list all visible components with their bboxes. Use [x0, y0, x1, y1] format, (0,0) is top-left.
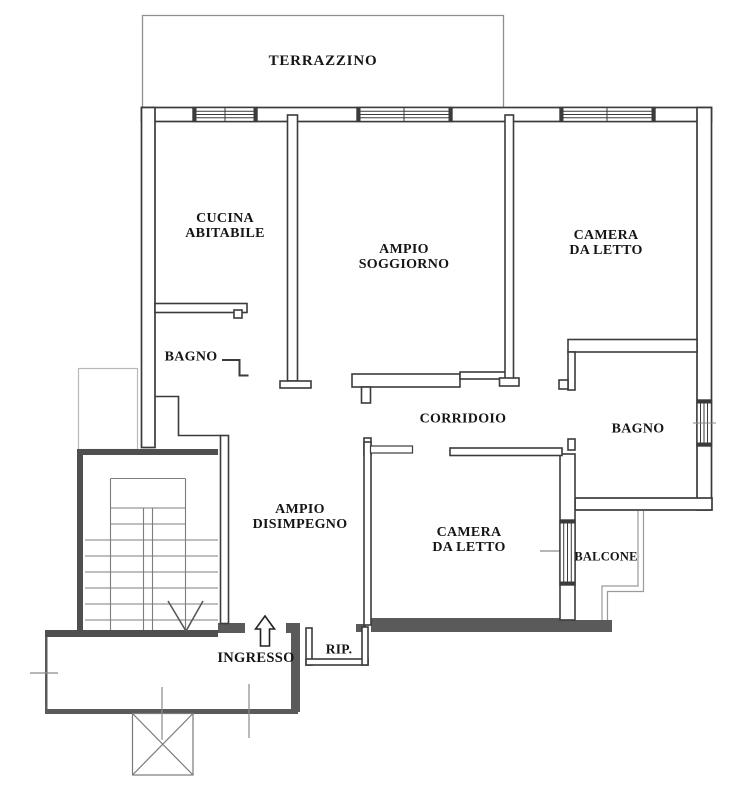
room-label-soggiorno: AMPIO SOGGIORNO	[359, 242, 450, 272]
shaft-box-outline	[79, 369, 138, 450]
room-label-terrazzino: TERRAZZINO	[269, 53, 378, 69]
window-bedroom-north-icon	[560, 108, 655, 122]
room-label-corridoio: CORRIDOIO	[420, 411, 507, 426]
room-label-bagno-est: BAGNO	[612, 421, 665, 436]
floor-plan: TERRAZZINO CUCINA ABITABILE AMPIO SOGGIO…	[0, 0, 740, 799]
south-walls	[218, 618, 612, 633]
window-living-icon	[357, 108, 452, 122]
room-label-camera-sud: CAMERA DA LETTO	[432, 525, 505, 555]
floor-plan-drawing	[0, 0, 740, 799]
room-label-bagno-ovest: BAGNO	[165, 349, 218, 364]
room-label-balcone: BALCONE	[574, 550, 637, 564]
window-kitchen-icon	[193, 108, 257, 122]
shaft-cross-icon	[133, 714, 194, 776]
room-label-ripostiglio: RIP.	[326, 643, 353, 658]
room-label-disimpegno: AMPIO DISIMPEGNO	[253, 502, 348, 532]
entrance-arrow-icon	[256, 616, 275, 646]
window-bedroom-south-icon	[560, 520, 575, 585]
window-bath-east-icon	[693, 400, 716, 446]
balcony-parapet	[602, 511, 644, 622]
bath-west-door-jamb	[222, 360, 249, 376]
room-label-camera-nord: CAMERA DA LETTO	[569, 228, 642, 258]
staircase	[45, 449, 218, 637]
room-label-ingresso: INGRESSO	[217, 651, 294, 667]
bath-west-step-wall	[155, 397, 221, 436]
interior-walls	[155, 115, 697, 665]
door-leaf	[371, 446, 413, 453]
room-label-cucina: CUCINA ABITABILE	[185, 211, 264, 241]
